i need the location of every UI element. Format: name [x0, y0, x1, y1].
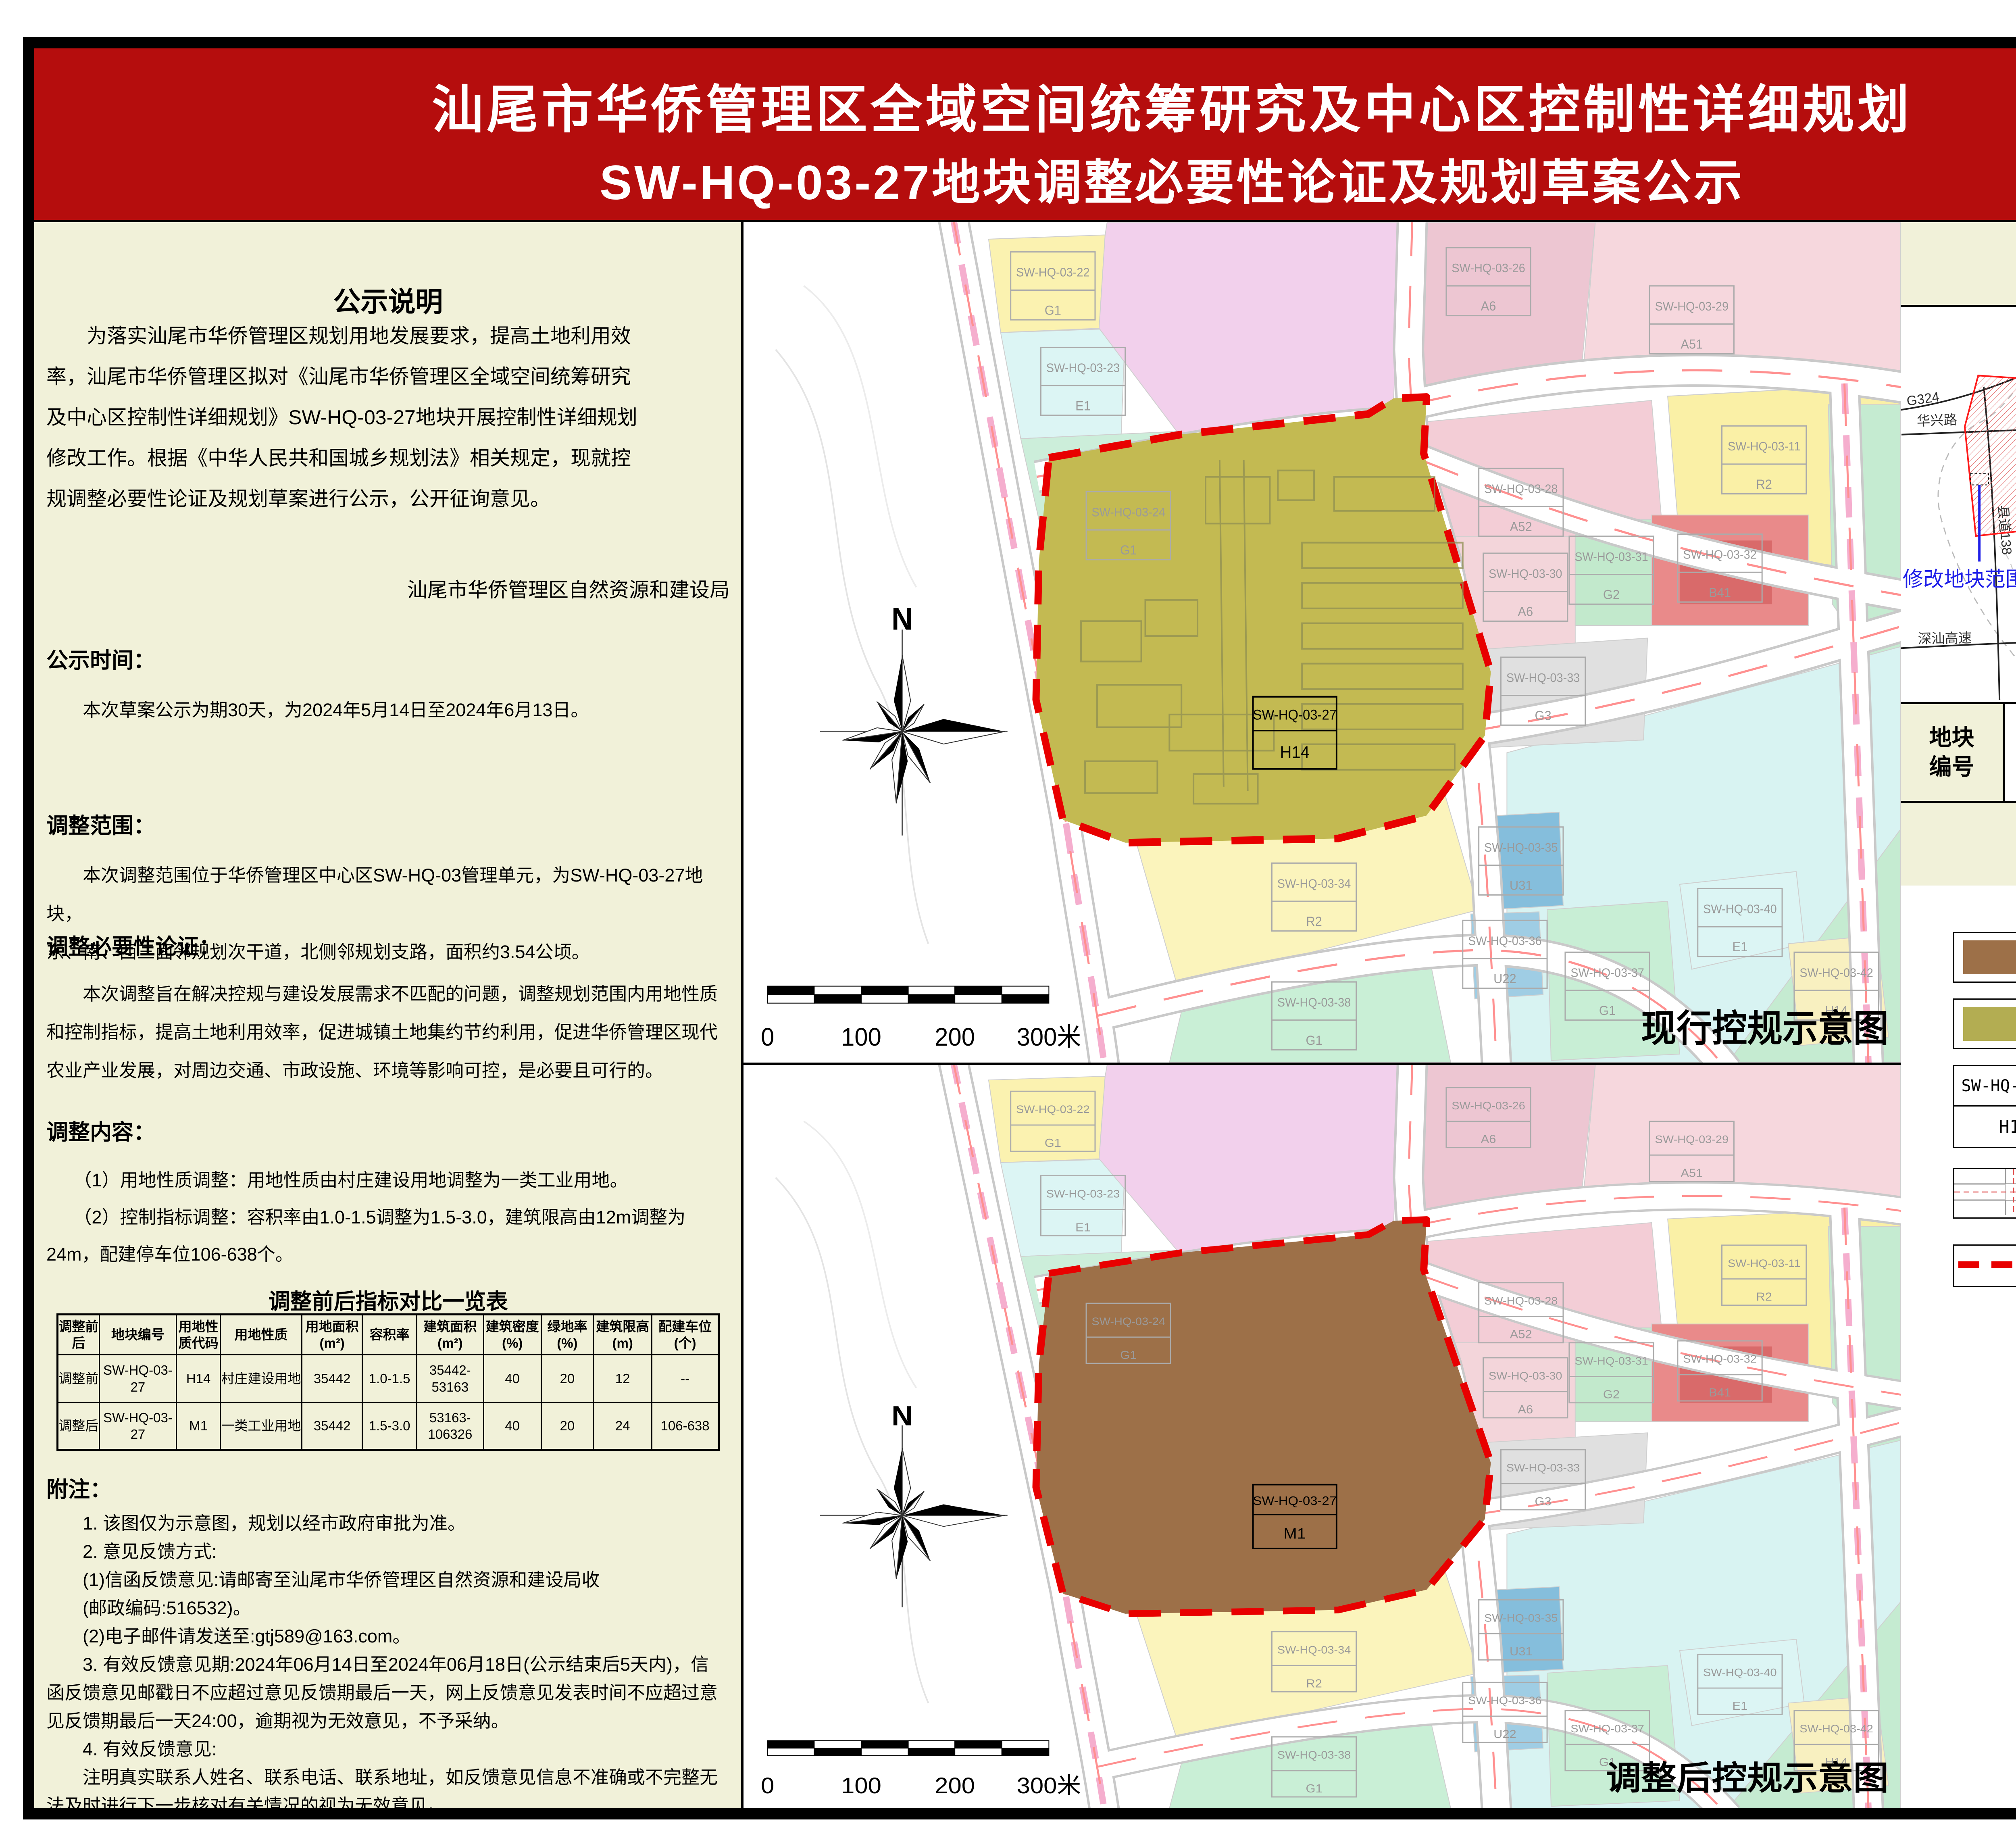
svg-text:SW-HQ-03-28: SW-HQ-03-28 [1484, 1295, 1558, 1307]
svg-text:SW-HQ-03-24: SW-HQ-03-24 [1091, 1315, 1165, 1328]
location-map: G324华兴路县道138侨惠公路潮惠高速深汕高速华侨公路SW-HQ-03单元修改… [1901, 307, 2016, 702]
svg-text:G2: G2 [1603, 1388, 1620, 1401]
svg-text:100: 100 [841, 1773, 881, 1798]
legend-road-icon [1953, 1168, 2016, 1219]
svg-text:SW-HQ-03-31: SW-HQ-03-31 [1574, 550, 1648, 564]
svg-text:SW-HQ-03-23: SW-HQ-03-23 [1046, 361, 1120, 375]
svg-text:SW-HQ-03-32: SW-HQ-03-32 [1683, 548, 1757, 562]
svg-text:R2: R2 [1756, 1290, 1772, 1303]
svg-text:修改地块范围: 修改地块范围 [1903, 568, 2016, 591]
svg-text:A6: A6 [1481, 298, 1496, 313]
table-cell: 35442 [302, 1403, 362, 1450]
svg-text:E1: E1 [1732, 939, 1747, 954]
section-necessity-title: 调整必要性论证： [46, 929, 730, 961]
table-cell: SW-HQ-03-27 [99, 1355, 177, 1403]
svg-text:G1: G1 [1045, 1137, 1061, 1150]
svg-text:SW-HQ-03-40: SW-HQ-03-40 [1703, 1666, 1776, 1678]
svg-text:SW-HQ-03-22: SW-HQ-03-22 [1016, 266, 1090, 279]
table-header-cell: 建筑限高 (m) [594, 1315, 652, 1355]
svg-text:A6: A6 [1481, 1133, 1496, 1146]
svg-text:SW-HQ-03-34: SW-HQ-03-34 [1277, 1644, 1351, 1656]
table-header-cell: 用地性 质代码 [177, 1315, 221, 1355]
svg-text:G1: G1 [1599, 1003, 1616, 1018]
svg-text:100: 100 [841, 1023, 881, 1051]
table-header-cell: 调整前 后 [58, 1315, 100, 1355]
table-cell: 调整前 [58, 1355, 100, 1403]
header-title-line2: SW-HQ-03-27地块调整必要性论证及规划草案公示 [34, 143, 2016, 213]
svg-text:现行控规示意图: 现行控规示意图 [1641, 1008, 1889, 1050]
svg-text:G1: G1 [1306, 1033, 1322, 1048]
svg-text:SW-HQ-03-33: SW-HQ-03-33 [1506, 671, 1580, 685]
block-number-row: 地块 编号 SW-HQ-03-27 [1901, 702, 2016, 803]
svg-text:SW-HQ-03-11: SW-HQ-03-11 [1728, 1257, 1800, 1269]
svg-text:SW-HQ-03-22: SW-HQ-03-22 [1016, 1103, 1089, 1115]
svg-text:R2: R2 [1306, 914, 1322, 929]
svg-text:G3: G3 [1535, 708, 1551, 723]
svg-text:N: N [891, 1400, 913, 1432]
table-cell: 35442- 53163 [417, 1355, 483, 1403]
svg-text:SW-HQ-03-27: SW-HQ-03-27 [1253, 707, 1337, 723]
table-cell: 调整后 [58, 1403, 100, 1450]
table-cell: M1 [177, 1403, 221, 1450]
svg-text:SW-HQ-03-23: SW-HQ-03-23 [1046, 1188, 1120, 1200]
svg-text:A52: A52 [1510, 519, 1532, 534]
svg-text:N: N [891, 602, 913, 637]
table-cell: 1.5-3.0 [362, 1403, 417, 1450]
table-cell: 53163- 106326 [417, 1403, 483, 1450]
svg-text:SW-HQ-03-35: SW-HQ-03-35 [1484, 1612, 1558, 1624]
svg-text:G2: G2 [1603, 587, 1620, 602]
notice-panel: 公示说明 为落实汕尾市华侨管理区规划用地发展要求，提高土地利用效 率，汕尾市华侨… [34, 222, 744, 1808]
compare-table-title: 调整前后指标对比一览表 [46, 1284, 730, 1315]
svg-text:SW-HQ-03-31: SW-HQ-03-31 [1574, 1355, 1648, 1367]
svg-text:深汕高速: 深汕高速 [1918, 631, 1972, 647]
table-header-cell: 建筑密度 (%) [483, 1315, 541, 1355]
section-time-title: 公示时间： [46, 642, 730, 674]
svg-text:SW-HQ-03-38: SW-HQ-03-38 [1277, 996, 1351, 1009]
section-content-title: 调整内容： [46, 1114, 730, 1146]
svg-text:300米: 300米 [1017, 1023, 1081, 1051]
svg-text:A51: A51 [1681, 337, 1703, 352]
svg-text:SW-HQ-03-36: SW-HQ-03-36 [1468, 1694, 1541, 1707]
svg-text:200: 200 [935, 1023, 975, 1051]
table-cell: 1.0-1.5 [362, 1355, 417, 1403]
table-cell: 35442 [302, 1355, 362, 1403]
table-header-cell: 地块编号 [99, 1315, 177, 1355]
svg-text:G1: G1 [1120, 542, 1137, 557]
svg-text:R2: R2 [1306, 1677, 1322, 1690]
svg-text:E1: E1 [1075, 398, 1091, 413]
section-content-body: （1）用地性质调整：用地性质由村庄建设用地调整为一类工业用地。 （2）控制指标调… [46, 1162, 730, 1273]
svg-text:SW-HQ-03-30: SW-HQ-03-30 [1489, 567, 1562, 581]
notes-title: 附注： [46, 1471, 730, 1503]
svg-text:0: 0 [761, 1773, 774, 1798]
svg-text:E1: E1 [1075, 1221, 1091, 1234]
notice-agency: 汕尾市华侨管理区自然资源和建设局 [46, 574, 744, 603]
table-cell: 20 [541, 1403, 594, 1450]
table-cell: 40 [483, 1355, 541, 1403]
svg-text:H14: H14 [1280, 742, 1310, 761]
svg-text:A6: A6 [1518, 604, 1533, 619]
header-title-line1: 汕尾市华侨管理区全域空间统筹研究及中心区控制性详细规划 [34, 68, 2016, 142]
svg-text:SW-HQ-03-32: SW-HQ-03-32 [1683, 1353, 1756, 1365]
legend-swatch [1953, 932, 2016, 983]
table-header-cell: 用地面积 (m²) [302, 1315, 362, 1355]
svg-text:200: 200 [935, 1773, 975, 1798]
svg-text:SW-HQ-03-36: SW-HQ-03-36 [1468, 934, 1542, 948]
svg-text:SW-HQ-03-40: SW-HQ-03-40 [1703, 902, 1777, 916]
table-header-cell: 用地性质 [221, 1315, 302, 1355]
legend-item: SW-HQ-03-27H14地块编号 用地性质代码 [1953, 1065, 2016, 1146]
legend-swatch [1953, 998, 2016, 1049]
svg-text:A52: A52 [1510, 1328, 1532, 1341]
svg-text:SW-HQ-03-42: SW-HQ-03-42 [1799, 966, 1873, 980]
svg-text:调整后控规示意图: 调整后控规示意图 [1606, 1759, 1889, 1796]
block-number-label: 地块 编号 [1901, 704, 2005, 801]
location-map-svg: G324华兴路县道138侨惠公路潮惠高速深汕高速华侨公路SW-HQ-03单元修改… [1901, 307, 2016, 702]
svg-text:SW-HQ-03-29: SW-HQ-03-29 [1655, 300, 1729, 313]
section-necessity-body: 本次调整旨在解决控规与建设发展需求不匹配的问题，调整规划范围内用地性质 和控制指… [46, 975, 730, 1090]
svg-text:SW-HQ-03-27: SW-HQ-03-27 [1253, 1494, 1337, 1508]
legend-item: 一类工业用地 [1953, 932, 2016, 980]
table-header-cell: 容积率 [362, 1315, 417, 1355]
table-cell: 20 [541, 1355, 594, 1403]
svg-text:G1: G1 [1045, 303, 1061, 318]
map-current-svg: SW-HQ-03-22G1SW-HQ-03-23E1SW-HQ-03-24G1S… [744, 222, 1901, 1063]
legend-red-dash [1953, 1244, 2016, 1287]
svg-text:SW-HQ-03-26: SW-HQ-03-26 [1452, 1100, 1525, 1112]
svg-text:华兴路: 华兴路 [1916, 413, 1957, 429]
legend-item: 城市道路 [1953, 1168, 2016, 1216]
table-cell: 村庄建设用地 [221, 1355, 302, 1403]
svg-text:U31: U31 [1510, 1645, 1533, 1658]
legend-body: 一类工业用地村庄建设用地SW-HQ-03-27H14地块编号 用地性质代码城市道… [1901, 886, 2016, 1808]
svg-text:M1: M1 [1284, 1525, 1306, 1542]
table-header-cell: 配建车位 (个) [652, 1315, 719, 1355]
legend-item: 修改地块范围 [1953, 1244, 2016, 1285]
svg-text:SW-HQ-03-29: SW-HQ-03-29 [1655, 1133, 1729, 1145]
section-scope-title: 调整范围： [46, 808, 730, 840]
svg-text:SW-HQ-03-42: SW-HQ-03-42 [1799, 1723, 1873, 1735]
block-number-value: SW-HQ-03-27 [2005, 704, 2016, 801]
svg-text:SW-HQ-03-26: SW-HQ-03-26 [1452, 261, 1525, 275]
svg-text:SW-HQ-03-11: SW-HQ-03-11 [1728, 440, 1800, 454]
legend-item: 村庄建设用地 [1953, 998, 2016, 1047]
svg-text:SW-HQ-03-37: SW-HQ-03-37 [1570, 1723, 1644, 1735]
svg-text:R2: R2 [1756, 477, 1772, 492]
legend-title: 图 例 [1901, 803, 2016, 888]
svg-text:G1: G1 [1120, 1349, 1137, 1362]
svg-text:SW-HQ-03-30: SW-HQ-03-30 [1489, 1370, 1562, 1382]
svg-text:A51: A51 [1681, 1167, 1703, 1180]
svg-text:U31: U31 [1510, 878, 1533, 893]
notice-sheet: 汕尾市华侨管理区全域空间统筹研究及中心区控制性详细规划 SW-HQ-03-27地… [23, 37, 2016, 1819]
table-header-cell: 绿地率 (%) [541, 1315, 594, 1355]
table-cell: 106-638 [652, 1403, 719, 1450]
table-cell: 一类工业用地 [221, 1403, 302, 1450]
section-time-body: 本次草案公示为期30天，为2024年5月14日至2024年6月13日。 [46, 691, 730, 729]
table-header-cell: 建筑面积 (m²) [417, 1315, 483, 1355]
svg-text:300米: 300米 [1017, 1773, 1081, 1798]
compare-table: 调整前 后地块编号用地性 质代码用地性质用地面积 (m²)容积率建筑面积 (m²… [56, 1313, 720, 1451]
table-cell: 12 [594, 1355, 652, 1403]
svg-text:SW-HQ-03-33: SW-HQ-03-33 [1506, 1462, 1580, 1474]
map-current: SW-HQ-03-22G1SW-HQ-03-23E1SW-HQ-03-24G1S… [744, 222, 1901, 1065]
notice-paragraph: 为落实汕尾市华侨管理区规划用地发展要求，提高土地利用效 率，汕尾市华侨管理区拟对… [46, 316, 730, 519]
svg-text:SW-HQ-03-34: SW-HQ-03-34 [1277, 877, 1351, 891]
map-adjusted-svg: SW-HQ-03-22G1SW-HQ-03-23E1SW-HQ-03-24G1S… [744, 1065, 1901, 1808]
table-cell: 40 [483, 1403, 541, 1450]
svg-text:0: 0 [761, 1023, 774, 1051]
compare-table-wrap: 调整前 后地块编号用地性 质代码用地性质用地面积 (m²)容积率建筑面积 (m²… [56, 1313, 720, 1451]
notes-body: 1. 该图仅为示意图，规划以经市政府审批为准。 2. 意见反馈方式: (1)信函… [46, 1509, 730, 1808]
table-cell: 24 [594, 1403, 652, 1450]
legend-parcel-box: SW-HQ-03-27H14 [1953, 1065, 2016, 1148]
svg-text:A6: A6 [1518, 1403, 1533, 1416]
table-cell: -- [652, 1355, 719, 1403]
svg-text:G3: G3 [1535, 1495, 1551, 1508]
location-map-title: 区位图 [1901, 222, 2016, 307]
svg-text:SW-HQ-03-38: SW-HQ-03-38 [1277, 1749, 1351, 1761]
header-banner: 汕尾市华侨管理区全域空间统筹研究及中心区控制性详细规划 SW-HQ-03-27地… [34, 48, 2016, 222]
table-cell: H14 [177, 1355, 221, 1403]
svg-text:SW-HQ-03-28: SW-HQ-03-28 [1484, 482, 1558, 496]
svg-text:B41: B41 [1709, 1386, 1731, 1399]
svg-text:U22: U22 [1493, 971, 1516, 986]
svg-text:SW-HQ-03-35: SW-HQ-03-35 [1484, 841, 1558, 854]
svg-text:SW-HQ-03-37: SW-HQ-03-37 [1570, 966, 1644, 980]
notice-title: 公示说明 [46, 279, 730, 319]
svg-text:B41: B41 [1709, 585, 1731, 600]
right-column: 区位图 G324华兴路县道138侨惠公路潮惠高速深汕高速华侨公路SW-HQ-03… [1901, 222, 2016, 1808]
map-adjusted: SW-HQ-03-22G1SW-HQ-03-23E1SW-HQ-03-24G1S… [744, 1065, 1901, 1808]
svg-text:E1: E1 [1733, 1700, 1748, 1713]
maps-column: SW-HQ-03-22G1SW-HQ-03-23E1SW-HQ-03-24G1S… [744, 222, 1901, 1808]
table-cell: SW-HQ-03-27 [99, 1403, 177, 1450]
svg-text:SW-HQ-03-24: SW-HQ-03-24 [1091, 506, 1165, 519]
svg-text:G1: G1 [1306, 1782, 1322, 1795]
svg-text:U22: U22 [1493, 1728, 1516, 1741]
